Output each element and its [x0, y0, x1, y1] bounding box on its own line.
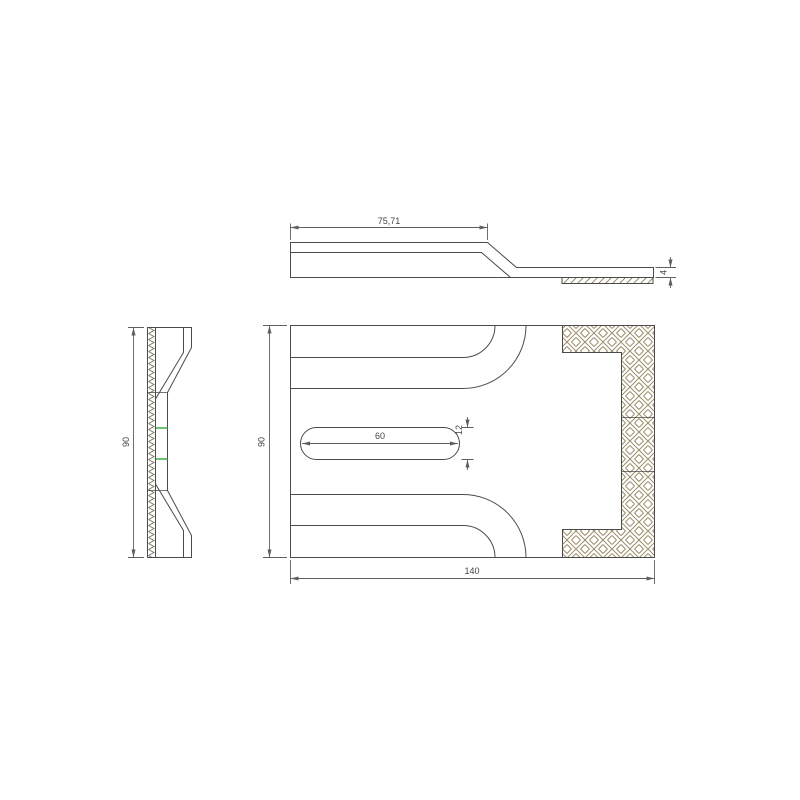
- top-profile-inner-edge: [291, 253, 511, 278]
- dim-side-height: 90: [121, 328, 144, 558]
- side-profile-inner-edges: [156, 328, 184, 558]
- top-profile-view: 75,71 4: [291, 216, 677, 288]
- dim-top-length: 75,71: [291, 216, 488, 240]
- dim-slot-width-label: 12: [454, 425, 464, 435]
- technical-drawing-canvas: 75,71 4 90: [0, 0, 800, 800]
- dim-top-thickness: 4: [656, 257, 677, 288]
- side-strip-section-hatch: [148, 328, 156, 558]
- top-profile-outline: [291, 243, 654, 278]
- top-holder-strip-hatch: [562, 278, 653, 284]
- drawing-page: 75,71 4 90: [0, 0, 800, 800]
- dim-side-height-label: 90: [121, 437, 131, 447]
- front-view: 60 12 90 140: [257, 326, 655, 585]
- holder-overlap-hatch: [563, 326, 655, 558]
- dim-front-height-label: 90: [257, 437, 267, 447]
- front-plate-outline: [291, 326, 655, 558]
- dim-front-height: 90: [257, 326, 288, 558]
- lower-channel-edges: [291, 495, 527, 558]
- dim-top-length-label: 75,71: [378, 216, 401, 226]
- dim-slot-length: 60: [302, 431, 458, 444]
- dim-top-thickness-label: 4: [659, 270, 669, 275]
- upper-channel-edges: [291, 326, 527, 389]
- slot-highlight-marks: [156, 428, 168, 459]
- dim-front-width: 140: [291, 560, 655, 584]
- dim-slot-length-label: 60: [375, 431, 385, 441]
- dim-front-width-label: 140: [464, 566, 479, 576]
- side-view: 90: [121, 328, 192, 558]
